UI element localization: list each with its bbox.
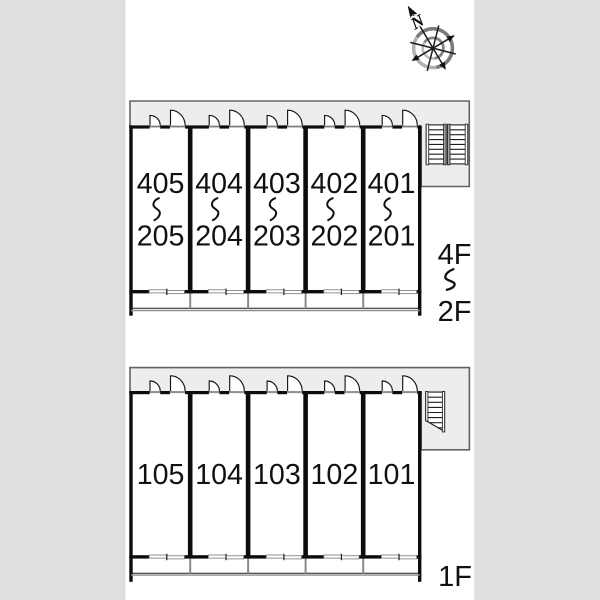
svg-text:403: 403 — [253, 168, 301, 200]
svg-text:404: 404 — [195, 168, 243, 200]
svg-text:104: 104 — [195, 459, 243, 491]
svg-text:101: 101 — [368, 459, 416, 491]
svg-text:405: 405 — [137, 168, 185, 200]
svg-text:2F: 2F — [438, 296, 472, 328]
svg-text:201: 201 — [368, 220, 416, 252]
svg-text:402: 402 — [311, 168, 359, 200]
svg-text:205: 205 — [137, 220, 185, 252]
svg-text:204: 204 — [195, 220, 243, 252]
svg-text:105: 105 — [137, 459, 185, 491]
svg-text:401: 401 — [368, 168, 416, 200]
svg-text:103: 103 — [253, 459, 301, 491]
svg-text:1F: 1F — [438, 561, 472, 593]
svg-text:202: 202 — [311, 220, 359, 252]
svg-text:203: 203 — [253, 220, 301, 252]
svg-text:102: 102 — [311, 459, 359, 491]
svg-text:4F: 4F — [438, 239, 472, 271]
